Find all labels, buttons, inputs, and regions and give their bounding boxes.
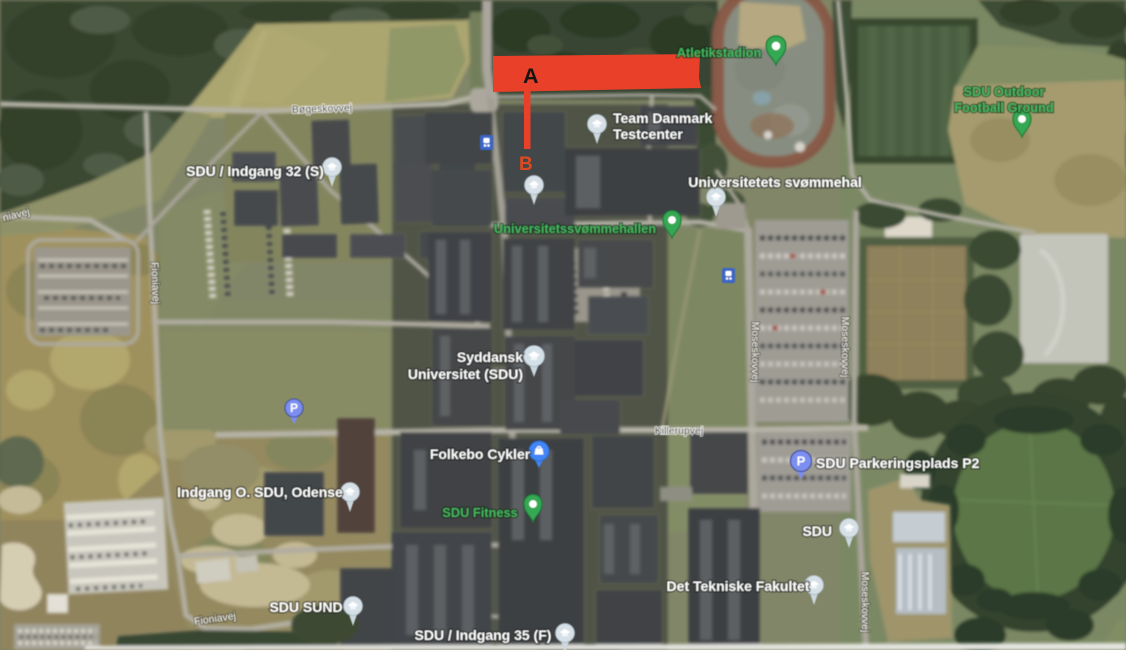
svg-text:A: A — [523, 64, 539, 88]
svg-text:Det Tekniske Fakultet: Det Tekniske Fakultet — [667, 578, 810, 594]
svg-text:Universitetets svømmehal: Universitetets svømmehal — [688, 174, 862, 190]
svg-text:Indgang O. SDU, Odense: Indgang O. SDU, Odense — [177, 484, 343, 500]
svg-text:Bøgeskovvej: Bøgeskovvej — [292, 102, 352, 116]
svg-text:Team Danmark: Team Danmark — [613, 110, 713, 126]
svg-text:P: P — [290, 401, 298, 415]
svg-text:Universitet (SDU): Universitet (SDU) — [408, 366, 523, 382]
svg-text:Atletikstadion: Atletikstadion — [677, 45, 762, 60]
svg-text:SDU Parkeringsplads P2: SDU Parkeringsplads P2 — [816, 455, 980, 471]
svg-text:SDU Fitness: SDU Fitness — [442, 505, 517, 520]
svg-text:Syddansk: Syddansk — [457, 349, 523, 365]
svg-text:SDU / Indgang 35 (F): SDU / Indgang 35 (F) — [415, 627, 552, 643]
svg-text:Testcenter: Testcenter — [613, 126, 683, 142]
svg-text:Moseskovvej: Moseskovvej — [859, 572, 871, 633]
svg-text:P: P — [797, 454, 806, 469]
svg-text:Folkebo Cykler: Folkebo Cykler — [430, 446, 531, 462]
svg-text:SDU Outdoor: SDU Outdoor — [963, 84, 1044, 99]
svg-text:SDU SUND: SDU SUND — [269, 599, 342, 615]
svg-text:Universitetssvømmehallen: Universitetssvømmehallen — [494, 221, 656, 236]
svg-text:Football Ground: Football Ground — [954, 100, 1054, 115]
svg-text:Moseskovvej: Moseskovvej — [839, 317, 851, 378]
svg-text:Fioniavej: Fioniavej — [148, 262, 161, 304]
svg-text:SDU: SDU — [802, 523, 832, 539]
svg-text:Moseskovvej: Moseskovvej — [749, 322, 761, 383]
svg-text:SDU / Indgang 32 (S): SDU / Indgang 32 (S) — [186, 163, 324, 179]
svg-text:Killerupvej: Killerupvej — [655, 425, 703, 437]
svg-text:B: B — [519, 154, 533, 175]
